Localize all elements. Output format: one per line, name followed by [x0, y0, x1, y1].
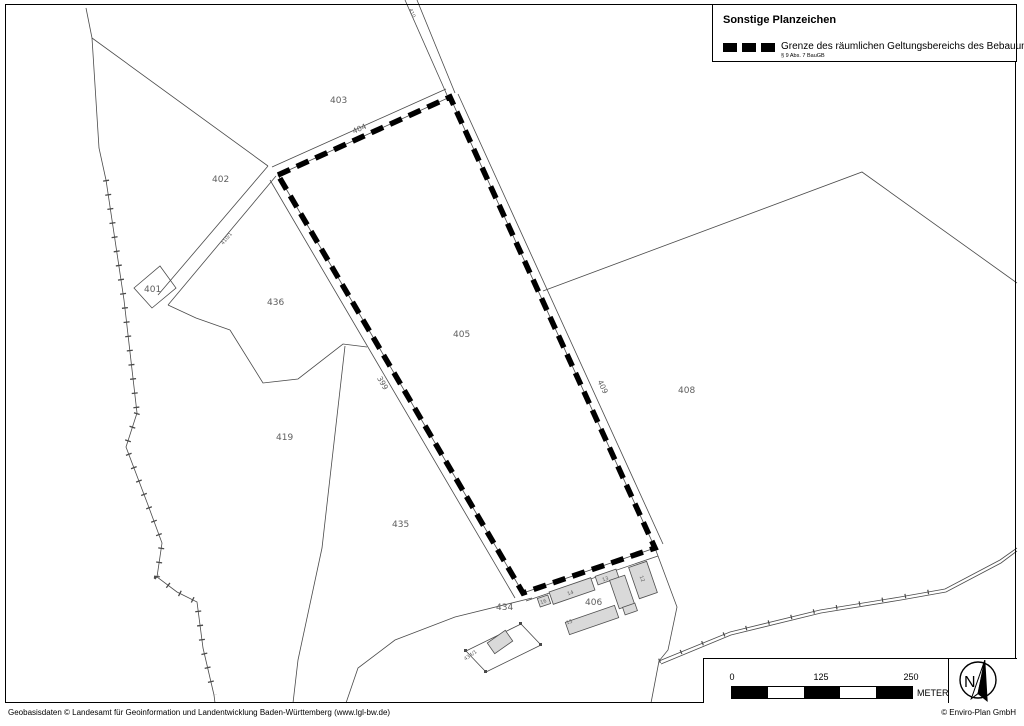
footer-attribution: Geobasisdaten © Landesamt für Geoinforma…: [8, 708, 390, 717]
boundary-dash-icon: [742, 43, 756, 52]
legend-item-sublabel: § 9 Abs. 7 BauGB: [781, 53, 825, 59]
scale-bar: [731, 686, 913, 699]
scale-bar-box: 0 125 250 METER: [703, 658, 948, 703]
map-frame-border: [5, 4, 1016, 703]
scale-unit-label: METER: [917, 688, 949, 698]
scale-tick-250: 250: [903, 672, 918, 682]
scale-tick-0: 0: [729, 672, 734, 682]
north-arrow-icon: N: [949, 659, 1018, 704]
scale-bar-segment: [732, 687, 768, 698]
scale-bar-segment: [804, 687, 840, 698]
plan-sheet: 403 404 402 401 436 405 408 419 435 434 …: [0, 0, 1024, 726]
legend-title: Sonstige Planzeichen: [723, 14, 836, 26]
scale-tick-125: 125: [813, 672, 828, 682]
legend-item-label: Grenze des räumlichen Geltungsbereichs d…: [781, 41, 1024, 52]
footer-company: © Enviro-Plan GmbH: [941, 708, 1016, 717]
north-letter: N: [964, 674, 976, 691]
boundary-dash-icon: [761, 43, 775, 52]
boundary-dash-icon: [723, 43, 737, 52]
scale-bar-segment: [876, 687, 912, 698]
plan-boundary-symbol: [723, 43, 775, 53]
north-arrow-box: N: [948, 658, 1017, 703]
scale-bar-segment: [840, 687, 876, 698]
scale-bar-segment: [768, 687, 804, 698]
legend-box: Sonstige Planzeichen Grenze des räumlich…: [712, 4, 1017, 62]
